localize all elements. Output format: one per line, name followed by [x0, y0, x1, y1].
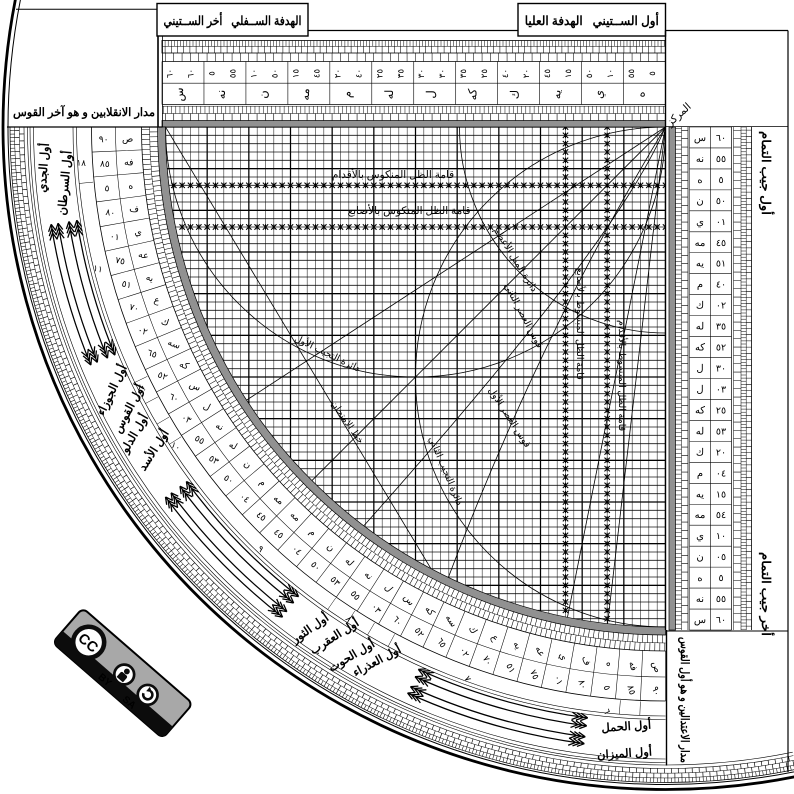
svg-text:٦٠: ٦٠ [716, 615, 726, 626]
svg-text:٣٠: ٣٠ [416, 69, 426, 78]
svg-text:٠٣: ٠٣ [716, 384, 727, 395]
svg-text:س: س [174, 87, 186, 101]
svg-text:١٠: ١٠ [605, 69, 615, 78]
svg-text:٥٠: ٥٠ [716, 196, 726, 207]
svg-text:٥٥: ٥٥ [716, 154, 726, 165]
svg-text:له: له [696, 426, 704, 437]
svg-text:ي: ي [594, 90, 606, 99]
svg-text:٥٥: ٥٥ [227, 69, 237, 79]
svg-text:كه: كه [467, 88, 480, 100]
svg-text:قامة الظل المبسوط بالأصابع: قامة الظل المبسوط بالأصابع [574, 268, 586, 380]
svg-text:ل: ل [696, 384, 703, 395]
svg-text:٥٢: ٥٢ [716, 343, 726, 354]
svg-text:٤٥: ٤٥ [716, 238, 726, 249]
svg-text:٥٥: ٥٥ [716, 594, 726, 605]
svg-text:ه: ه [636, 91, 648, 97]
svg-text:١٠: ١٠ [716, 531, 726, 542]
svg-text:٦٠: ٦٠ [185, 69, 195, 78]
svg-text:٠١: ٠١ [109, 231, 120, 242]
svg-text:فه: فه [124, 157, 134, 168]
svg-text:له: له [383, 90, 396, 100]
svg-text:مه: مه [695, 510, 706, 521]
svg-text:٨٠: ٨٠ [105, 207, 116, 218]
svg-text:عه: عه [137, 249, 149, 261]
svg-text:٢٥: ٢٥ [479, 69, 489, 79]
svg-text:٥٠: ٥٠ [269, 69, 279, 78]
svg-text:٠١: ٠١ [716, 217, 726, 228]
svg-text:م: م [697, 280, 703, 291]
svg-text:١١: ١١ [92, 263, 103, 275]
svg-text:٩٠: ٩٠ [99, 134, 109, 144]
svg-text:٣٥: ٣٥ [458, 69, 468, 79]
svg-text:١٠: ١٠ [248, 69, 258, 78]
svg-text:٤٠: ٤٠ [716, 280, 726, 291]
svg-text:٣٠: ٣٠ [716, 364, 726, 375]
svg-text:١٥: ١٥ [716, 489, 726, 500]
svg-text:٢٠: ٢٠ [716, 447, 726, 458]
svg-text:ك: ك [509, 90, 522, 99]
svg-text:له: له [696, 322, 704, 333]
svg-text:٤٥: ٤٥ [542, 69, 552, 79]
svg-text:س: س [694, 615, 706, 626]
svg-text:٠٤: ٠٤ [716, 468, 726, 479]
svg-text:ن: ن [696, 196, 703, 207]
svg-text:ه: ه [697, 573, 702, 584]
svg-text:الهدفة الســفلي أخر الســتين: الهدفة الســفلي أخر الســتيني [164, 12, 302, 29]
svg-text:٥٠: ٥٠ [584, 69, 594, 78]
svg-text:٢٥: ٢٥ [716, 405, 726, 416]
svg-text:مه: مه [695, 238, 706, 249]
svg-text:٣٠: ٣٠ [437, 69, 447, 78]
svg-text:٥: ٥ [647, 71, 657, 76]
svg-text:ل: ل [696, 364, 703, 375]
svg-text:٥٣: ٥٣ [716, 426, 727, 437]
svg-text:ي: ي [696, 531, 704, 542]
svg-text:٢٠: ٢٠ [332, 69, 342, 78]
svg-text:قامة الظل المبسوط بالأقدام: قامة الظل المبسوط بالأقدام [616, 320, 628, 432]
svg-text:٣٥: ٣٥ [395, 69, 405, 79]
svg-text:٢٥: ٢٥ [374, 69, 384, 79]
svg-text:ل: ل [425, 90, 438, 98]
svg-text:٨٥: ٨٥ [100, 159, 110, 170]
svg-text:٠٥: ٠٥ [716, 552, 726, 563]
svg-text:ك: ك [696, 447, 704, 458]
svg-text:١٥: ١٥ [563, 69, 573, 79]
svg-text:س: س [694, 133, 706, 144]
svg-text:ك: ك [696, 301, 704, 312]
svg-text:١٥: ١٥ [290, 69, 300, 79]
svg-text:٥: ٥ [718, 175, 723, 186]
svg-text:أخر جيب التمام: أخر جيب التمام [758, 552, 774, 636]
svg-text:ي: ي [696, 217, 704, 228]
svg-text:٥١: ٥١ [716, 259, 726, 270]
svg-text:يه: يه [696, 259, 704, 270]
svg-text:٦٠: ٦٠ [164, 69, 174, 78]
svg-text:ه: ه [697, 175, 702, 186]
svg-text:٥: ٥ [718, 573, 723, 584]
svg-text:٠٢: ٠٢ [716, 301, 726, 312]
svg-text:كه: كه [695, 405, 705, 416]
svg-text:ف: ف [129, 203, 140, 214]
svg-text:نه: نه [696, 154, 704, 165]
svg-text:ن: ن [696, 552, 703, 563]
svg-text:يه: يه [552, 90, 564, 99]
svg-text:٥: ٥ [206, 71, 216, 76]
svg-text:٢٠: ٢٠ [521, 69, 531, 78]
svg-text:٦٠: ٦٠ [716, 133, 726, 144]
svg-text:٣٥: ٣٥ [716, 322, 726, 333]
svg-text:٥٤: ٥٤ [716, 510, 726, 521]
svg-text:مدار الاعتدالين و هو أول القوس: مدار الاعتدالين و هو أول القوس [677, 637, 693, 763]
svg-text:٥٥: ٥٥ [626, 69, 636, 79]
svg-text:قامة الظل المنكوس بالأقدام: قامة الظل المنكوس بالأقدام [332, 167, 454, 181]
svg-text:كه: كه [695, 343, 705, 354]
svg-text:ص: ص [122, 134, 133, 145]
svg-text:يه: يه [696, 489, 704, 500]
svg-text:٤٥: ٤٥ [311, 69, 321, 79]
svg-text:نه: نه [216, 90, 228, 99]
svg-text:قامة الظل المنكوس بالأصابع: قامة الظل المنكوس بالأصابع [347, 203, 470, 217]
svg-text:م: م [342, 91, 354, 98]
svg-text:أول الســتيني الهدفة العليا: أول الســتيني الهدفة العليا [525, 12, 659, 29]
svg-text:٤٠: ٤٠ [500, 69, 510, 78]
svg-text:٤٠: ٤٠ [353, 69, 363, 78]
svg-text:م: م [697, 468, 703, 479]
svg-text:مه: مه [300, 88, 312, 100]
svg-text:أول جيب التمام: أول جيب التمام [758, 131, 774, 215]
svg-text:نه: نه [696, 594, 704, 605]
svg-text:ن: ن [258, 90, 270, 98]
